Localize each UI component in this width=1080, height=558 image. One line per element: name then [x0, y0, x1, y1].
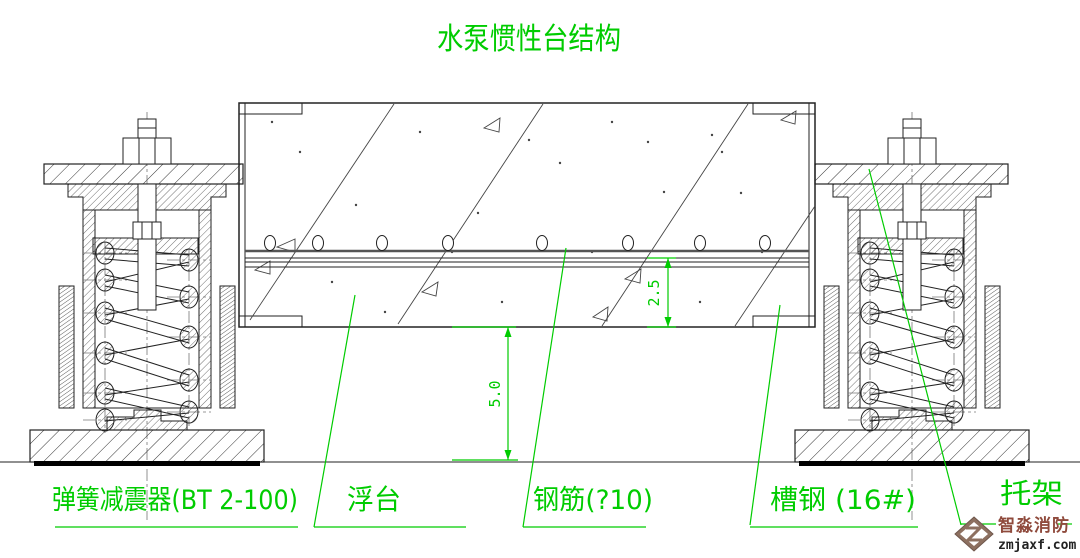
watermark-logo: 智淼消防 zmjaxf.com: [955, 515, 1076, 553]
drawing-title: 水泵惯性台结构: [437, 22, 621, 57]
right-bracket-plate: [815, 164, 1008, 184]
watermark-company: 智淼消防: [998, 515, 1070, 536]
dimension-clearance-height: 5.0: [452, 327, 518, 460]
label-floating-platform: 浮台: [347, 483, 401, 516]
cad-drawing: 2.5 5.0 弹簧减震器(BT 2-100) 浮台 钢筋(?10) 槽钢 (1…: [0, 0, 1080, 558]
label-bracket: 托架: [1000, 477, 1063, 510]
label-rebar: 钢筋(?10): [533, 485, 653, 516]
cad-sheet: 2.5 5.0 弹簧减震器(BT 2-100) 浮台 钢筋(?10) 槽钢 (1…: [0, 0, 1080, 558]
watermark-website: zmjaxf.com: [998, 538, 1076, 553]
dim-text-2-5: 2.5: [645, 279, 663, 306]
dim-text-5-0: 5.0: [486, 380, 504, 407]
label-spring-damper: 弹簧减震器(BT 2-100): [52, 485, 298, 516]
floating-platform-block: [239, 103, 815, 327]
left-bracket-plate: [44, 164, 243, 184]
label-channel-steel: 槽钢 (16#): [770, 485, 916, 516]
